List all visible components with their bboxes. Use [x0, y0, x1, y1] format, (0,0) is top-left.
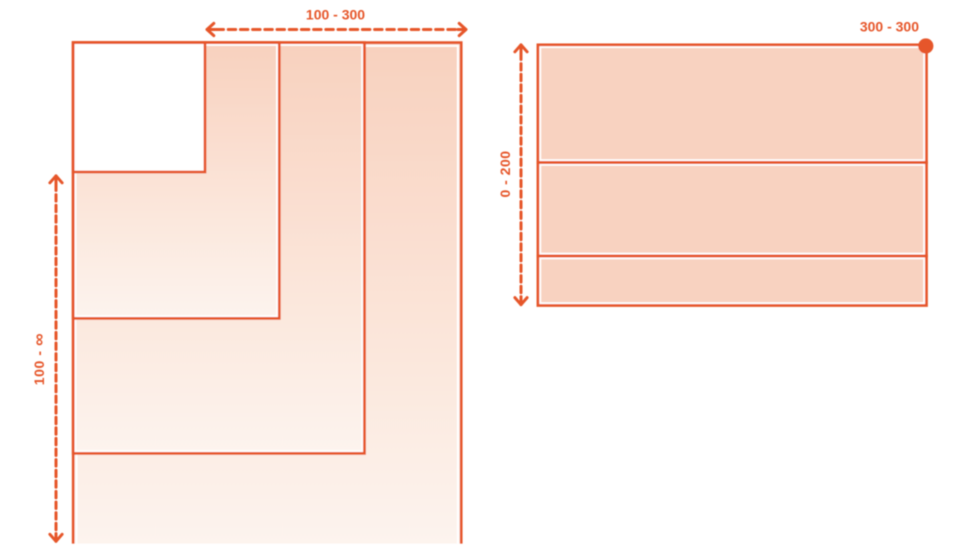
svg-text:300 - 300: 300 - 300: [860, 19, 919, 35]
svg-text:100 - ∞: 100 - ∞: [29, 333, 49, 385]
svg-text:100 - 300: 100 - 300: [306, 7, 365, 23]
svg-text:0 - 200: 0 - 200: [497, 150, 513, 197]
